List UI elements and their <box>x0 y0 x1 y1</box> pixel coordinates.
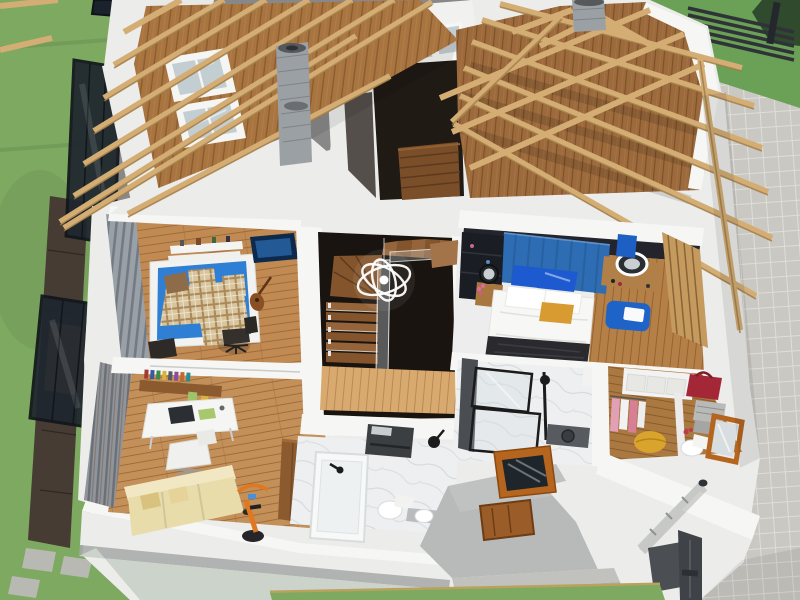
porch-skylight <box>494 446 556 498</box>
blue-ottoman <box>605 300 651 332</box>
porch-door <box>480 500 534 540</box>
attic-stairs <box>398 142 460 200</box>
house-cutaway-render <box>0 0 800 600</box>
pedestal-basin <box>415 510 433 523</box>
pillow-navy-1 <box>537 268 578 292</box>
bath-vanity <box>365 424 414 458</box>
plaid-pillow-2 <box>222 274 246 298</box>
paper <box>198 408 216 420</box>
towel-blue <box>616 234 637 258</box>
chimney-ridge <box>572 0 606 32</box>
pillow-navy-2 <box>511 265 542 288</box>
pillow-gold <box>539 302 574 324</box>
bathtub <box>310 452 368 542</box>
kids-bedroom <box>106 206 314 368</box>
plaid-pillow <box>188 268 216 289</box>
desk-art <box>188 392 198 402</box>
kids-tv <box>250 233 298 263</box>
laundry-appliance <box>546 424 590 448</box>
master-bedroom <box>450 210 708 388</box>
walk-in-closet <box>592 362 742 468</box>
yellow-pouf <box>634 431 666 453</box>
render-viewport <box>0 0 800 600</box>
landing-floor <box>320 366 458 414</box>
stair-hall <box>300 232 474 440</box>
closet-wall-left <box>592 362 610 468</box>
pillow-white-1 <box>505 286 546 310</box>
chimney-left <box>276 42 312 166</box>
stair-top-shelf <box>430 240 460 268</box>
laptop <box>168 405 195 424</box>
downpipe-vertical <box>678 530 702 600</box>
attic-floor <box>456 2 719 200</box>
